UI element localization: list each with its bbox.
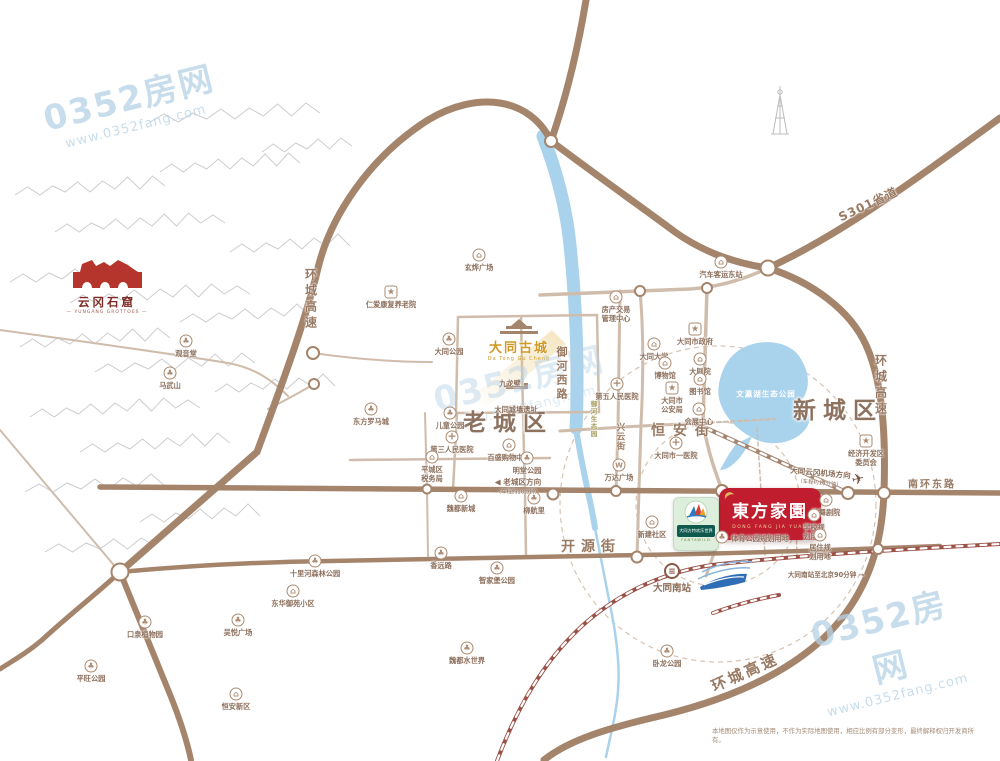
park-icon: ♣ <box>461 642 474 655</box>
building-icon: ⌂ <box>694 373 707 386</box>
poi-label: 九龙壁 <box>499 379 521 388</box>
poi-label: 恒安新区 <box>222 702 251 711</box>
building-icon: ⌂ <box>648 338 661 351</box>
map-note: ◀ 老城区方向（车程约10分钟） <box>495 477 541 496</box>
lake-label: 文瀛湖生态公园 <box>736 389 796 400</box>
park-icon: ♣ <box>180 335 193 348</box>
park-icon: ♣ <box>435 547 448 560</box>
poi-label: 万达广场 <box>605 473 634 482</box>
poi-label: 房产交易 管理中心 <box>602 305 631 324</box>
fantawild-en: FANTAWILD <box>674 538 718 542</box>
poi-label: 柳航里 <box>523 506 545 515</box>
yungang-title: 云冈石窟 <box>47 294 167 310</box>
poi-label: 居住规 划用地 <box>809 543 831 562</box>
poi-label: 博物馆 <box>654 371 676 380</box>
park-icon: ♣ <box>309 555 322 568</box>
park-icon: ♣ <box>365 403 378 416</box>
poi-label: 玄烨广场 <box>465 263 494 272</box>
park-icon: ♣ <box>232 614 245 627</box>
street-label: 御河生态园 <box>588 400 598 438</box>
building-icon: ⌂ <box>455 490 468 503</box>
poi-label: 平旺公园 <box>77 674 106 683</box>
star-icon: ★ <box>689 323 702 336</box>
poi-label: 第五人民医院 <box>595 392 638 401</box>
poi-label: 平城区 税务局 <box>421 465 443 484</box>
poi-label: 大同市政府 <box>677 337 713 346</box>
note-subtext: （车程约10分钟） <box>495 488 541 496</box>
yungang-grottoes-logo: 云冈石窟 — YUNGANG GROTTOES — <box>47 294 167 315</box>
building-icon: ⌂ <box>820 494 833 507</box>
building-icon: ⌂ <box>610 291 623 304</box>
cross-icon: + <box>611 378 624 391</box>
poi-label: 大同公园 <box>435 347 464 356</box>
park-icon: ♣ <box>521 452 534 465</box>
poi-label: 卧龙公园 <box>653 659 682 668</box>
street-label: 环城高速 <box>303 268 320 332</box>
poi-label: 观音堂 <box>175 349 197 358</box>
poi-label: 魏都新城 <box>447 504 476 513</box>
note-text: ◀ 老城区方向 <box>495 477 541 488</box>
poi-label: 体育公园规划用地 <box>731 534 789 543</box>
park-icon: ♣ <box>85 660 98 673</box>
park-icon: ♣ <box>444 407 457 420</box>
park-icon: ♣ <box>491 562 504 575</box>
plane-icon: ✈ <box>850 472 865 487</box>
park-icon: ♣ <box>716 531 729 544</box>
building-icon: ⌂ <box>814 529 827 542</box>
poi-label: 大同市一医院 <box>654 451 697 460</box>
gucheng-pinyin: Da Tong Gu Cheng <box>488 356 550 362</box>
location-map: 云冈石窟 — YUNGANG GROTTOES — 大同古城 Da Tong G… <box>0 0 1000 761</box>
park-icon: ♣ <box>443 333 456 346</box>
poi-label: 东方罗马城 <box>353 417 389 426</box>
star-icon: ★ <box>385 286 398 299</box>
building-icon: ⌂ <box>473 249 486 262</box>
street-label: 开源街 <box>561 536 621 556</box>
building-icon: ⌂ <box>287 585 300 598</box>
street-label: 兴云街 <box>614 423 626 452</box>
building-icon: ⌂ <box>659 357 672 370</box>
poi-label: 口泉植物园 <box>127 630 163 639</box>
star-icon: ★ <box>860 435 873 448</box>
building-icon: ⌂ <box>808 509 821 522</box>
yungang-grotto-icon <box>73 260 142 288</box>
tv-tower-icon <box>771 86 789 134</box>
map-note: 大同南站至北京90分钟 → <box>788 569 864 579</box>
wanda-icon: W <box>613 459 626 472</box>
poi-label: 十里河森林公园 <box>290 569 340 578</box>
cross-icon: + <box>670 437 683 450</box>
poi-label: 魏都水世界 <box>449 656 485 665</box>
poi-label: 大同南站 <box>653 583 691 595</box>
park-icon: ♣ <box>661 645 674 658</box>
poi-label: 汽车客运东站 <box>699 270 742 279</box>
poi-label: 吴悦广场 <box>224 628 253 637</box>
palace-icon <box>500 319 538 334</box>
rail-icon: ≡ <box>664 563 680 579</box>
disclaimer-text: 本地图仅作为示意使用，不作为实际地图使用，相应比例有部分变形，最终解释权归开发商… <box>712 727 974 745</box>
poi-label: 明堂公园 <box>513 466 542 475</box>
poi-label: 会展中心 <box>685 417 714 426</box>
fantawild-logo-icon <box>674 498 718 525</box>
building-icon: ⌂ <box>646 516 659 529</box>
fantawild-name: 大同方特欢乐世界 <box>677 525 715 537</box>
district-label: 新城区 <box>793 391 883 425</box>
yungang-subtitle: — YUNGANG GROTTOES — <box>47 310 167 315</box>
poi-label: 大同城墙遗址 <box>494 405 537 414</box>
note-text: 大同南站至北京90分钟 → <box>788 569 864 579</box>
street-label: 御河西路 <box>553 346 569 402</box>
fantawild-badge: 大同方特欢乐世界 FANTAWILD <box>673 497 719 551</box>
park-icon: ♣ <box>139 616 152 629</box>
building-icon: ⌂ <box>694 353 707 366</box>
street-label: 环城高速 <box>873 354 890 418</box>
building-icon: ⌂ <box>426 451 439 464</box>
building-icon: ⌂ <box>230 688 243 701</box>
ancient-city-label: 大同古城 Da Tong Gu Cheng <box>488 337 550 362</box>
cross-icon: + <box>446 431 459 444</box>
star-icon: ★ <box>666 382 679 395</box>
building-icon: ⌂ <box>693 403 706 416</box>
poi-label: 新建社区 <box>638 530 667 539</box>
poi-label: 智家堡公园 <box>479 576 515 585</box>
poi-label: 经济开发区 委员会 <box>848 449 884 468</box>
poi-label: 大同市 公安局 <box>661 396 683 415</box>
poi-label: 仁爱康复养老院 <box>366 300 416 309</box>
gucheng-title: 大同古城 <box>488 337 550 356</box>
poi-label: 马武山 <box>159 381 181 390</box>
poi-label: 东华御苑小区 <box>271 599 314 608</box>
poi-label: 香远路 <box>430 561 452 570</box>
poi-label: 图书馆 <box>689 387 711 396</box>
street-label: 南环东路 <box>908 476 956 491</box>
park-icon: ♣ <box>164 367 177 380</box>
bus-icon: ⌂ <box>715 256 728 269</box>
yu-river <box>543 136 619 757</box>
building-icon: ⌂ <box>503 439 516 452</box>
